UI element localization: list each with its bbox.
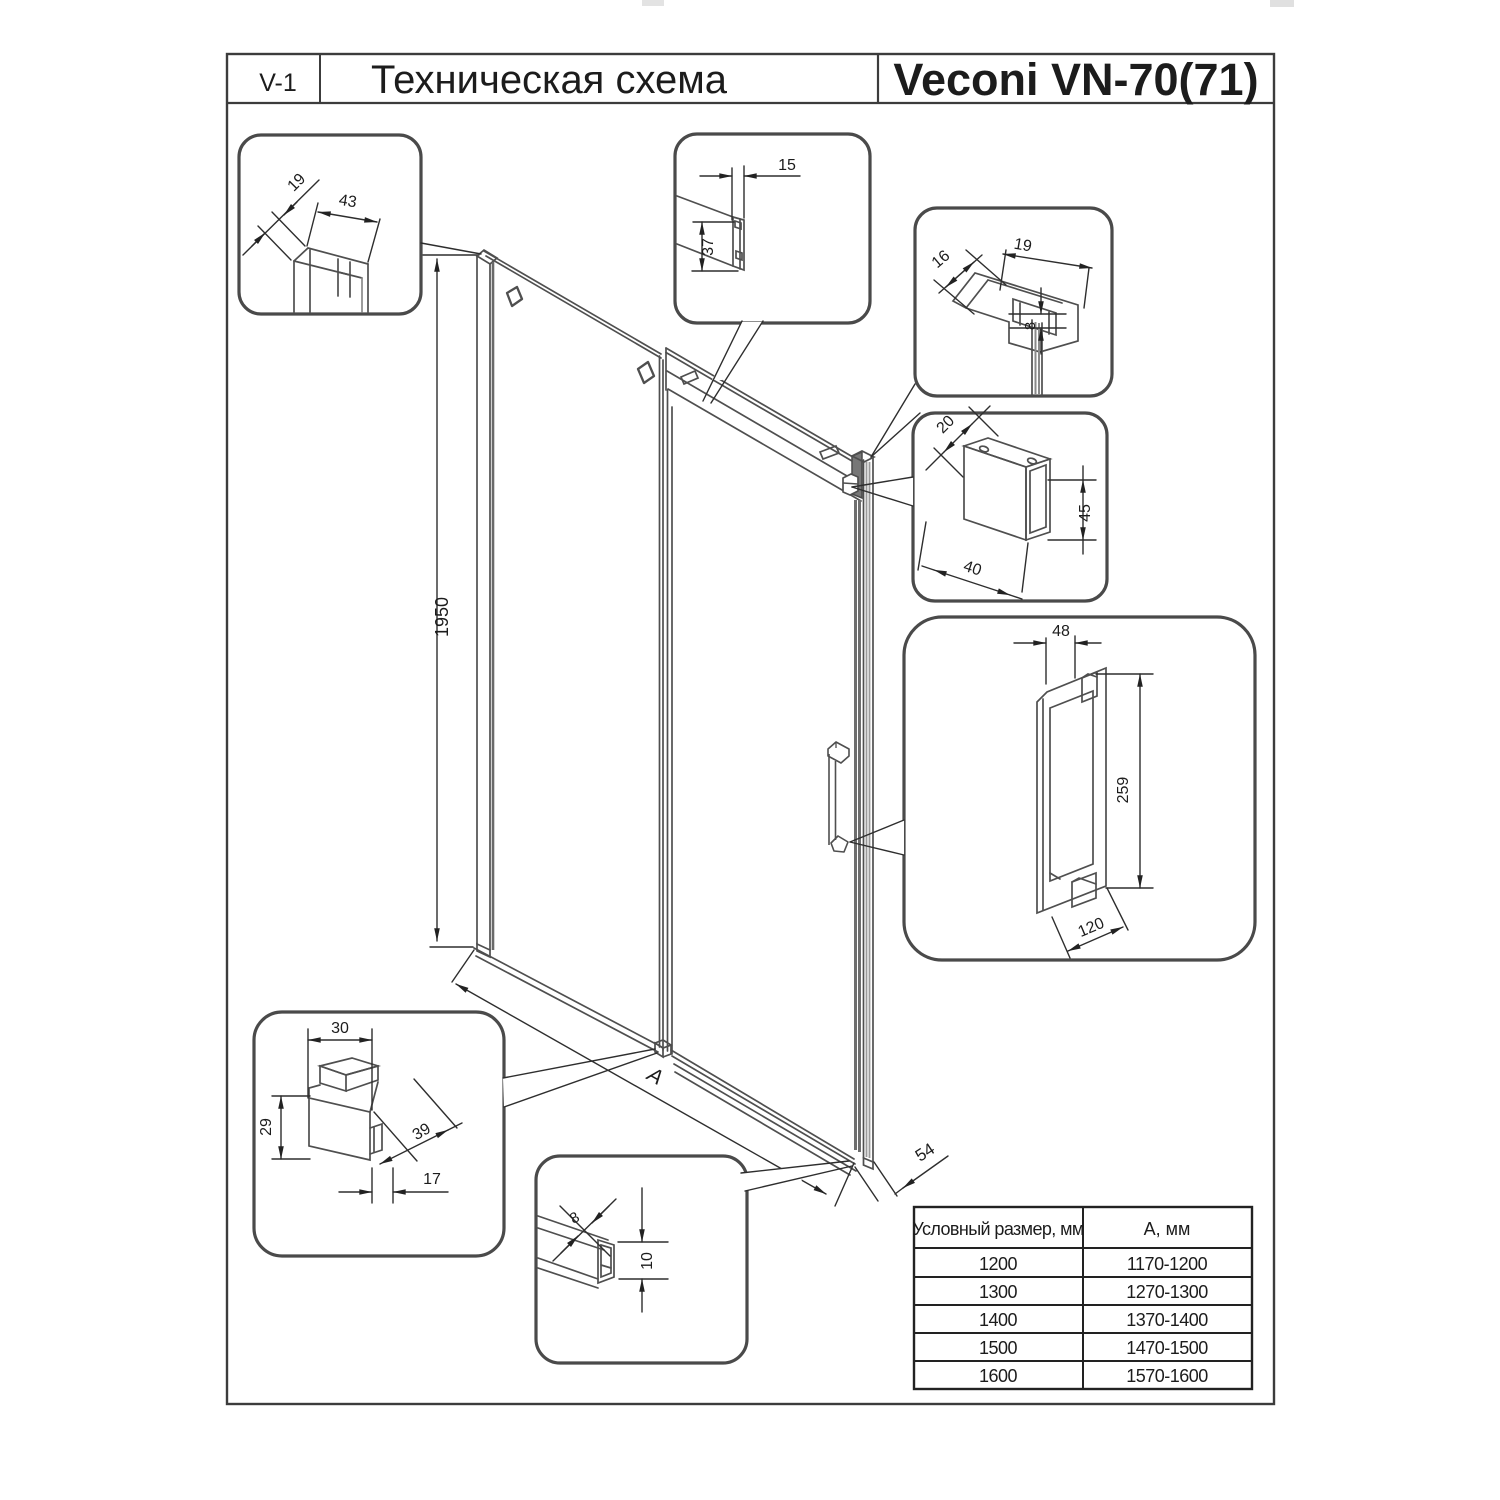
svg-text:30: 30 bbox=[331, 1020, 349, 1037]
svg-text:1950: 1950 bbox=[432, 597, 452, 637]
svg-text:259: 259 bbox=[1115, 777, 1132, 804]
svg-text:1470-1500: 1470-1500 bbox=[1126, 1338, 1208, 1358]
svg-text:1570-1600: 1570-1600 bbox=[1126, 1366, 1208, 1386]
svg-text:1200: 1200 bbox=[979, 1254, 1018, 1274]
svg-text:19: 19 bbox=[1013, 236, 1034, 256]
svg-text:17: 17 bbox=[423, 1171, 441, 1188]
svg-text:1170-1200: 1170-1200 bbox=[1127, 1254, 1208, 1274]
svg-text:1400: 1400 bbox=[979, 1310, 1018, 1330]
svg-text:V-1: V-1 bbox=[259, 69, 297, 97]
svg-text:Техническая схема: Техническая схема bbox=[371, 58, 728, 102]
svg-text:48: 48 bbox=[1052, 623, 1070, 640]
svg-text:Veconi VN-70(71): Veconi VN-70(71) bbox=[893, 54, 1258, 105]
svg-text:1370-1400: 1370-1400 bbox=[1126, 1310, 1208, 1330]
svg-text:1600: 1600 bbox=[979, 1366, 1018, 1386]
svg-text:1500: 1500 bbox=[979, 1338, 1018, 1358]
svg-text:10: 10 bbox=[639, 1252, 656, 1270]
svg-text:1270-1300: 1270-1300 bbox=[1126, 1282, 1208, 1302]
svg-text:15: 15 bbox=[778, 157, 796, 174]
svg-text:43: 43 bbox=[338, 192, 358, 212]
svg-text:А, мм: А, мм bbox=[1144, 1219, 1191, 1239]
svg-text:37: 37 bbox=[700, 238, 717, 256]
svg-text:45: 45 bbox=[1077, 504, 1094, 522]
svg-text:8: 8 bbox=[1022, 322, 1039, 330]
svg-text:1300: 1300 bbox=[979, 1282, 1018, 1302]
svg-text:Условный размер, мм: Условный размер, мм bbox=[912, 1219, 1083, 1239]
svg-text:29: 29 bbox=[258, 1118, 275, 1136]
